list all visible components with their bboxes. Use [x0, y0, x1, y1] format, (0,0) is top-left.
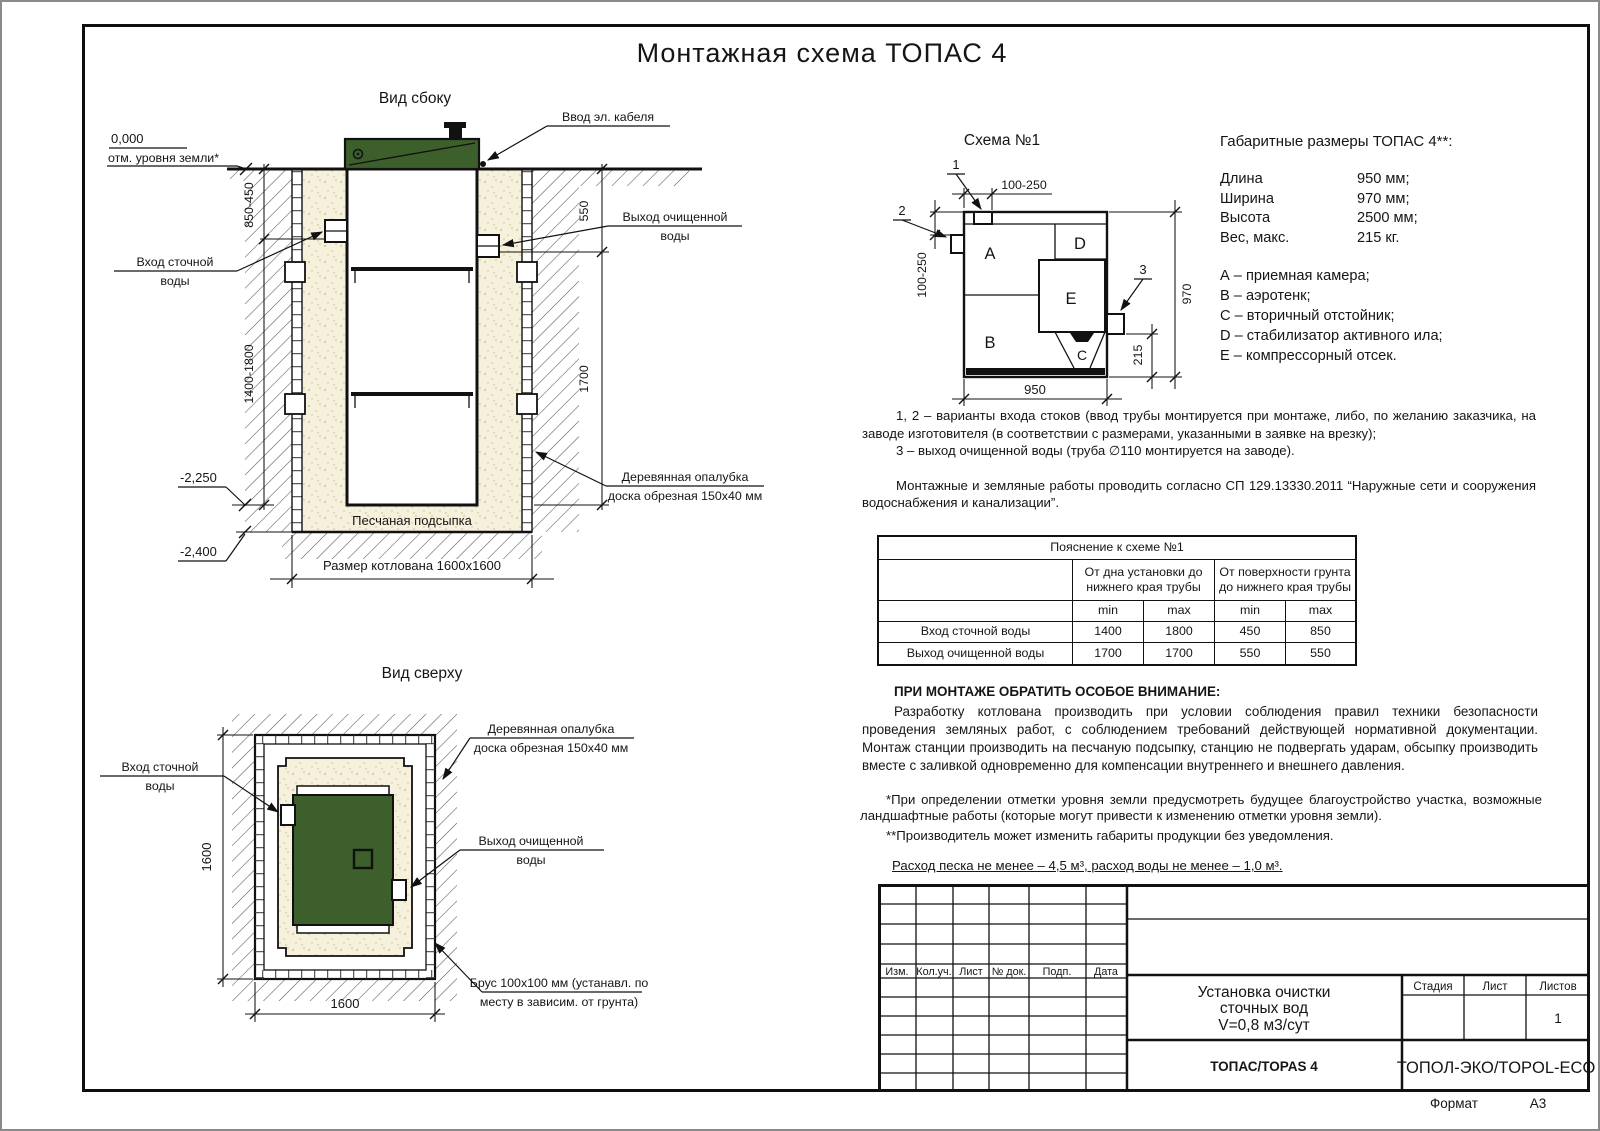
table-cell: 1800 — [1143, 621, 1214, 642]
table-cell: 1700 — [1072, 642, 1143, 664]
stage-label: Стадия — [1413, 981, 1452, 993]
spec-row: Ширина970 мм; — [1220, 190, 1550, 210]
dim-850-450: 850-450 — [242, 182, 256, 228]
table-cell: 550 — [1285, 642, 1355, 664]
attention-block: ПРИ МОНТАЖЕ ОБРАТИТЬ ОСОБОЕ ВНИМАНИЕ: Ра… — [862, 683, 1538, 775]
table-cell: 1700 — [1143, 642, 1214, 664]
table-cell: 550 — [1214, 642, 1285, 664]
top-lid-assembly — [281, 786, 406, 933]
timber-callout: Брус 100х100 мм (устанавл. по месту в за… — [435, 943, 648, 1009]
top-view-drawing: Вход сточной воды Деревянная опалубка до… — [87, 692, 787, 1022]
table-cell: 1400 — [1072, 621, 1143, 642]
top-inlet-label-2: воды — [145, 779, 174, 793]
timber-label-1: Брус 100х100 мм (устанавл. по — [470, 976, 649, 990]
lid-vent-hatch — [354, 850, 372, 868]
top-outlet-label-1: Выход очищенной — [479, 834, 584, 848]
doc-name-3: V=0,8 м3/сут — [1218, 1017, 1309, 1034]
tank-body — [347, 169, 477, 505]
timber-label-2: месту в зависим. от грунта) — [480, 995, 638, 1009]
explanation-table: Пояснение к схеме №1 От дна установки до… — [877, 535, 1357, 666]
company-name: ТОПОЛ-ЭКО/TOPOL-ECO — [1397, 1059, 1596, 1077]
top-formwork-callout: Деревянная опалубка доска обрезная 150х4… — [443, 722, 634, 779]
drawing-sheet: Монтажная схема ТОПАС 4 Вид сбоку Вид св… — [0, 0, 1600, 1131]
col-izm: Изм. — [885, 966, 908, 978]
table-title: Пояснение к схеме №1 — [879, 537, 1355, 559]
note-outlet: 3 – выход очищенной воды (труба ∅110 мон… — [862, 442, 1536, 460]
top-inlet-pipe — [281, 805, 295, 825]
format-note: Формат А3 — [1430, 1096, 1546, 1111]
stage-headers: Стадия Лист Листов — [1413, 981, 1576, 993]
table-max2: max — [1285, 600, 1355, 621]
outlet-label-1: Выход очищенной — [623, 210, 728, 224]
dim-1700: 1700 — [577, 365, 591, 393]
doc-name-1: Установка очистки — [1198, 984, 1331, 1001]
outlet-pipe — [477, 235, 499, 257]
schema-drawing: A B C D E 1 2 3 10 — [872, 127, 1202, 412]
legend-item: D – стабилизатор активного ила; — [1220, 326, 1550, 346]
top-dim-1600-h: 1600 — [331, 996, 360, 1011]
note-inlet-variants: 1, 2 – варианты входа стоков (ввод трубы… — [862, 407, 1536, 442]
top-outlet-pipe — [392, 880, 406, 900]
title-block: Изм. Кол.уч. Лист № док. Подп. Дата Уста… — [878, 884, 1590, 1092]
schema-inlet-left — [951, 235, 964, 253]
side-formwork-right — [522, 169, 532, 532]
schema-dim-bottom: 950 — [952, 379, 1122, 406]
schema-pointer-3: 3 — [1121, 262, 1152, 310]
spec-row: Вес, макс.215 кг. — [1220, 229, 1550, 249]
spec-row: Высота2500 мм; — [1220, 209, 1550, 229]
schema-outlet-right — [1107, 314, 1124, 334]
table-group2: От поверхности грунта до нижнего края тр… — [1214, 559, 1355, 600]
top-formwork-label-1: Деревянная опалубка — [488, 722, 615, 736]
attention-heading: ПРИ МОНТАЖЕ ОБРАТИТЬ ОСОБОЕ ВНИМАНИЕ: — [862, 683, 1538, 701]
sheets-label: Листов — [1539, 981, 1576, 993]
notes-block: 1, 2 – варианты входа стоков (ввод трубы… — [862, 407, 1536, 512]
schema-dim-top-label: 100-250 — [1001, 178, 1047, 192]
spec-row: Длина950 мм; — [1220, 170, 1550, 190]
note-sp-standard: Монтажные и земляные работы проводить со… — [862, 477, 1536, 512]
pit-size-label: Размер котлована 1600х1600 — [323, 558, 501, 573]
svg-text:1: 1 — [952, 157, 959, 172]
chamber-b: B — [984, 334, 995, 352]
tank-lid — [345, 139, 479, 169]
attention-body: Разработку котлована производить при усл… — [862, 703, 1538, 775]
table-cell: 450 — [1214, 621, 1285, 642]
schema-dim-left-label: 100-250 — [915, 252, 929, 298]
chamber-d: D — [1074, 235, 1086, 253]
inlet-label-2: воды — [160, 274, 189, 288]
legend-item: А – приемная камера; — [1220, 266, 1550, 286]
level-2250-label: -2,250 — [180, 470, 217, 485]
table-group1: От дна установки до нижнего края трубы — [1072, 559, 1214, 600]
specs-block: Габаритные размеры ТОПАС 4**: Длина950 м… — [1220, 133, 1550, 366]
col-podp: Подп. — [1043, 966, 1072, 978]
inlet-pipe — [325, 220, 347, 242]
side-view-drawing: Ввод эл. кабеля 0,000 отм. уровня земли*… — [87, 87, 787, 602]
cable-entry-callout: Ввод эл. кабеля — [480, 110, 670, 167]
legend-item: В – аэротенк; — [1220, 286, 1550, 306]
col-list: Лист — [959, 966, 983, 978]
dim-1400-1800: 1400-1800 — [242, 344, 256, 403]
col-data: Дата — [1094, 966, 1118, 978]
chamber-legend: А – приемная камера; В – аэротенк; С – в… — [1220, 266, 1550, 366]
legend-item: С – вторичный отстойник; — [1220, 306, 1550, 326]
schema-dim-970: 970 — [1180, 284, 1194, 305]
vent-pipe — [444, 122, 466, 139]
chamber-e: E — [1065, 290, 1076, 308]
top-dim-1600-v: 1600 — [199, 843, 214, 872]
schema-dim-950: 950 — [1024, 382, 1046, 397]
col-koluch: Кол.уч. — [916, 966, 951, 978]
top-inlet-label-1: Вход сточной — [122, 760, 199, 774]
svg-text:2: 2 — [898, 203, 905, 218]
formwork-label-2: доска обрезная 150х40 мм — [608, 489, 763, 503]
top-view-title: Вид сверху — [342, 665, 502, 683]
table-min1: min — [1072, 600, 1143, 621]
top-formwork-label-2: доска обрезная 150х40 мм — [474, 741, 629, 755]
schema-dim-215-label: 215 — [1131, 345, 1145, 366]
table-min2: min — [1214, 600, 1285, 621]
table-cell: 850 — [1285, 621, 1355, 642]
dim-550: 550 — [577, 201, 591, 222]
sheets-count: 1 — [1554, 1011, 1562, 1026]
schema-dim-215: 215 — [1126, 324, 1158, 389]
sand-bedding-label: Песчаная подсыпка — [352, 513, 472, 528]
schema-dim-top: 100-250 — [952, 178, 1052, 210]
chamber-c: C — [1077, 347, 1087, 363]
table-row-label: Выход очищенной воды — [879, 642, 1072, 664]
specs-rows: Длина950 мм; Ширина970 мм; Высота2500 мм… — [1220, 170, 1550, 248]
sheet-label: Лист — [1483, 981, 1509, 993]
chamber-a: A — [984, 245, 995, 263]
svg-text:3: 3 — [1139, 262, 1146, 277]
ground-mark-label: отм. уровня земли* — [108, 151, 219, 165]
table-max1: max — [1143, 600, 1214, 621]
inlet-label-1: Вход сточной — [137, 255, 214, 269]
table-row-label: Вход сточной воды — [879, 621, 1072, 642]
specs-title: Габаритные размеры ТОПАС 4**: — [1220, 133, 1550, 150]
format-label: Формат — [1430, 1096, 1478, 1111]
zero-mark-label: 0,000 — [111, 131, 144, 146]
cable-entry-label: Ввод эл. кабеля — [562, 110, 654, 124]
footnote-2: **Производитель может изменить габариты … — [860, 828, 1542, 844]
col-ndok: № док. — [992, 966, 1027, 978]
model-name: ТОПАС/TOPAS 4 — [1210, 1059, 1318, 1074]
footnote-1: *При определении отметки уровня земли пр… — [860, 792, 1542, 824]
legend-item: Е – компрессорный отсек. — [1220, 346, 1550, 366]
format-value: А3 — [1530, 1096, 1547, 1111]
consumption-note: Расход песка не менее – 4,5 м³, расход в… — [892, 858, 1283, 873]
outlet-label-2: воды — [660, 229, 689, 243]
formwork-label-1: Деревянная опалубка — [622, 470, 749, 484]
schema-inlet-top — [974, 212, 992, 224]
sheet-title: Монтажная схема ТОПАС 4 — [572, 38, 1072, 69]
footnotes-block: *При определении отметки уровня земли пр… — [860, 792, 1542, 848]
doc-name-2: сточных вод — [1220, 1000, 1308, 1017]
top-outlet-label-2: воды — [516, 853, 545, 867]
level-2400-label: -2,400 — [180, 544, 217, 559]
side-formwork-left — [292, 169, 302, 532]
